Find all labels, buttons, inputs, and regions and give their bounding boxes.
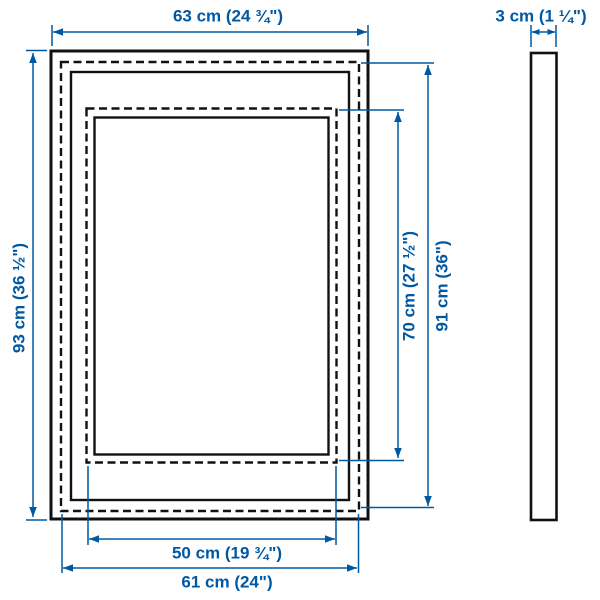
mat-opening-outline [95, 118, 329, 455]
dimension-lines [26, 25, 556, 573]
arrowhead-left-icon [532, 29, 540, 35]
arrowhead-right-icon [357, 28, 367, 36]
arrowhead-left-icon [63, 564, 73, 572]
frame-opening-outline [71, 72, 349, 500]
arrowhead-left-icon [89, 535, 99, 543]
dimension-arrowheads [29, 28, 555, 572]
arrowhead-up-icon [394, 112, 402, 122]
dimension-label-inner-right-height: 70 cm (27 ½") [401, 231, 418, 341]
arrowhead-right-icon [325, 535, 335, 543]
dimension-label-top-width: 63 cm (24 ¾") [173, 8, 283, 25]
arrowhead-right-icon [347, 564, 357, 572]
picture-50x70-dashed-outline [87, 109, 337, 463]
product-dimension-diagram: 63 cm (24 ¾") 3 cm (1 ¼") 93 cm (36 ½") … [0, 0, 600, 600]
dimension-label-side-depth: 3 cm (1 ¼") [495, 8, 586, 25]
frame-outlines [51, 51, 557, 520]
dimension-label-outer-bottom-width: 61 cm (24") [181, 574, 272, 591]
side-profile-outline [531, 53, 557, 520]
dimension-label-left-height: 93 cm (36 ½") [11, 243, 28, 353]
dimension-label-outer-right-height: 91 cm (36") [434, 240, 451, 331]
dimension-label-inner-bottom-width: 50 cm (19 ¾") [172, 545, 282, 562]
arrowhead-down-icon [394, 448, 402, 458]
arrowhead-right-icon [548, 29, 556, 35]
arrowhead-left-icon [53, 28, 63, 36]
picture-61x91-dashed-outline [61, 62, 359, 511]
arrowhead-down-icon [29, 507, 37, 517]
arrowhead-up-icon [29, 53, 37, 63]
frame-outer-outline [51, 51, 368, 519]
arrowhead-down-icon [424, 496, 432, 506]
dimension-drawing [0, 0, 600, 600]
arrowhead-up-icon [424, 65, 432, 75]
